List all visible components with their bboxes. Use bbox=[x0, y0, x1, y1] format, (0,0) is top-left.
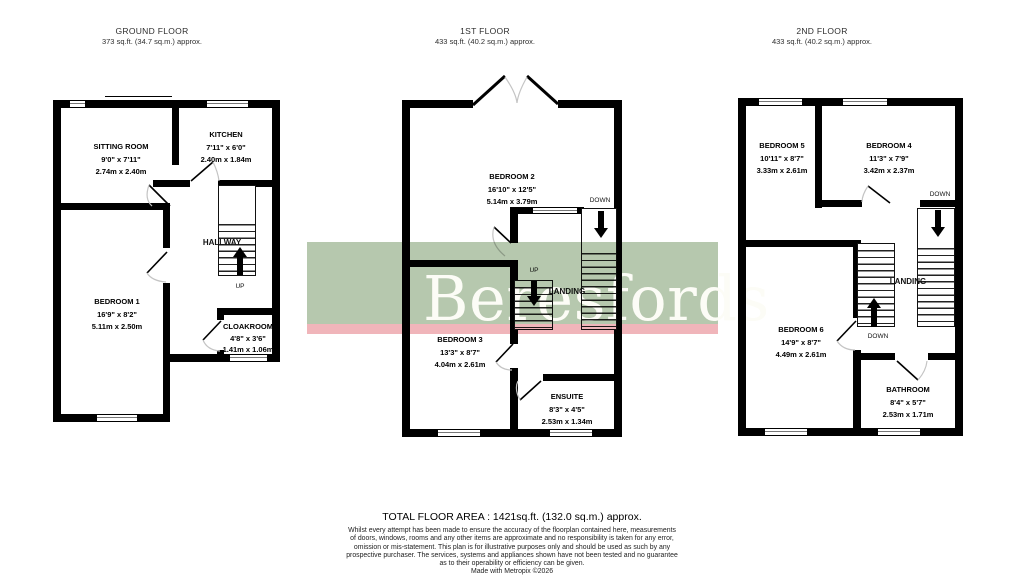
window bbox=[207, 100, 248, 108]
bay-window-walls bbox=[473, 76, 558, 105]
window bbox=[438, 429, 480, 437]
second-floor-header: 2ND FLOOR 433 sq.ft. (40.2 sq.m.) approx… bbox=[722, 26, 922, 46]
second-floor-title: 2ND FLOOR bbox=[722, 26, 922, 36]
wall-segment bbox=[163, 283, 170, 422]
arrow-shaft bbox=[598, 211, 604, 228]
disclaimer-line: of doors, windows, rooms and any other i… bbox=[0, 535, 1024, 543]
wall-segment bbox=[558, 100, 622, 108]
window bbox=[759, 98, 802, 106]
wall-segment bbox=[955, 98, 963, 436]
up-label-first: UP bbox=[529, 267, 538, 274]
room-dim-imperial: 16'9" x 8'2" bbox=[92, 309, 142, 322]
arrow-head bbox=[594, 228, 608, 238]
landing-label-second: LANDING bbox=[890, 277, 926, 286]
arrow-head bbox=[867, 298, 881, 308]
first-floor-title: 1ST FLOOR bbox=[385, 26, 585, 36]
second-floor-area: 433 sq.ft. (40.2 sq.m.) approx. bbox=[722, 37, 922, 46]
room-name: CLOAKROOM bbox=[223, 321, 274, 333]
window bbox=[765, 428, 807, 436]
down-label-second-center: DOWN bbox=[868, 333, 889, 340]
room-label-bedroom-1: BEDROOM 1 16'9" x 8'2" 5.11m x 2.50m bbox=[92, 296, 142, 334]
hallway-label: HALLWAY bbox=[203, 238, 241, 247]
room-label-cloakroom: CLOAKROOM 4'8" x 3'6" 1.41m x 1.06m bbox=[223, 321, 274, 356]
arrow-head bbox=[233, 247, 247, 257]
stairs-down-arrow-icon bbox=[594, 211, 608, 238]
room-name: ENSUITE bbox=[542, 391, 593, 404]
wall-segment bbox=[853, 353, 895, 360]
room-dim-imperial: 8'3" x 4'5" bbox=[542, 404, 593, 417]
room-label-bathroom: BATHROOM 8'4" x 5'7" 2.53m x 1.71m bbox=[883, 384, 934, 422]
room-label-bedroom-4: BEDROOM 4 11'3" x 7'9" 3.42m x 2.37m bbox=[864, 140, 915, 178]
window bbox=[878, 428, 920, 436]
ground-floor-title: GROUND FLOOR bbox=[52, 26, 252, 36]
wall-segment bbox=[163, 203, 170, 248]
room-name: BEDROOM 2 bbox=[487, 171, 538, 184]
wall-segment bbox=[920, 200, 963, 207]
room-label-kitchen: KITCHEN 7'11" x 6'0" 2.40m x 1.84m bbox=[201, 129, 252, 167]
room-dim-imperial: 10'11" x 8'7" bbox=[757, 153, 808, 166]
wall-segment bbox=[510, 368, 518, 437]
room-dim-metric: 1.41m x 1.06m bbox=[223, 344, 274, 356]
stairs-up-arrow-icon bbox=[233, 247, 247, 275]
arrow-shaft bbox=[935, 210, 941, 227]
window bbox=[97, 414, 137, 422]
room-dim-imperial: 7'11" x 6'0" bbox=[201, 142, 252, 155]
disclaimer-line: prospective purchaser. The services, sys… bbox=[0, 552, 1024, 560]
first-floor-header: 1ST FLOOR 433 sq.ft. (40.2 sq.m.) approx… bbox=[385, 26, 585, 46]
room-dim-metric: 4.49m x 2.61m bbox=[776, 349, 827, 362]
wall-segment bbox=[815, 200, 862, 207]
room-dim-metric: 3.33m x 2.61m bbox=[757, 165, 808, 178]
stairs-down-arrow-icon bbox=[931, 210, 945, 237]
room-dim-metric: 2.40m x 1.84m bbox=[201, 154, 252, 167]
room-name: SITTING ROOM bbox=[94, 141, 149, 154]
room-name: BEDROOM 5 bbox=[757, 140, 808, 153]
room-label-bedroom-6: BEDROOM 6 14'9" x 8'7" 4.49m x 2.61m bbox=[776, 324, 827, 362]
wall-segment bbox=[738, 98, 746, 436]
room-dim-imperial: 14'9" x 8'7" bbox=[776, 337, 827, 350]
room-dim-imperial: 16'10" x 12'5" bbox=[487, 184, 538, 197]
wall-segment bbox=[928, 353, 963, 360]
wall-segment bbox=[738, 240, 857, 247]
ground-floor-area: 373 sq.ft. (34.7 sq.m.) approx. bbox=[52, 37, 252, 46]
footer: TOTAL FLOOR AREA : 1421sq.ft. (132.0 sq.… bbox=[0, 511, 1024, 576]
wall-segment bbox=[172, 100, 179, 165]
landing-label-first: LANDING bbox=[549, 287, 585, 296]
total-floor-area: TOTAL FLOOR AREA : 1421sq.ft. (132.0 sq.… bbox=[0, 511, 1024, 523]
wall-segment bbox=[217, 308, 224, 320]
room-name: BEDROOM 6 bbox=[776, 324, 827, 337]
wall-segment bbox=[53, 203, 170, 210]
room-label-bedroom-5: BEDROOM 5 10'11" x 8'7" 3.33m x 2.61m bbox=[757, 140, 808, 178]
arrow-shaft bbox=[237, 257, 243, 275]
wall-segment bbox=[815, 98, 822, 208]
arrow-head bbox=[931, 227, 945, 237]
room-dim-imperial: 8'4" x 5'7" bbox=[883, 397, 934, 410]
room-dim-metric: 2.53m x 1.71m bbox=[883, 409, 934, 422]
disclaimer: Whilst every attempt has been made to en… bbox=[0, 527, 1024, 576]
up-label-ground: UP bbox=[235, 283, 244, 290]
window bbox=[533, 207, 577, 214]
wall-segment bbox=[402, 260, 512, 267]
room-label-bedroom-2: BEDROOM 2 16'10" x 12'5" 5.14m x 3.79m bbox=[487, 171, 538, 209]
room-dim-metric: 2.74m x 2.40m bbox=[94, 166, 149, 179]
room-label-sitting-room: SITTING ROOM 9'0" x 7'11" 2.74m x 2.40m bbox=[94, 141, 149, 179]
room-label-ensuite: ENSUITE 8'3" x 4'5" 2.53m x 1.34m bbox=[542, 391, 593, 429]
ground-floor-header: GROUND FLOOR 373 sq.ft. (34.7 sq.m.) app… bbox=[52, 26, 252, 46]
room-name: BEDROOM 1 bbox=[92, 296, 142, 309]
window bbox=[70, 100, 85, 108]
room-name: BATHROOM bbox=[883, 384, 934, 397]
room-dim-metric: 5.11m x 2.50m bbox=[92, 321, 142, 334]
wall-segment bbox=[543, 374, 622, 381]
disclaimer-line: Whilst every attempt has been made to en… bbox=[0, 527, 1024, 535]
wall-segment bbox=[53, 100, 61, 422]
room-dim-imperial: 13'3" x 8'7" bbox=[435, 347, 486, 360]
wall-segment bbox=[153, 180, 190, 187]
room-dim-metric: 3.42m x 2.37m bbox=[864, 165, 915, 178]
disclaimer-line: omission or mis-statement. This plan is … bbox=[0, 544, 1024, 552]
down-label-first: DOWN bbox=[590, 197, 611, 204]
floorplan-page: GROUND FLOOR 373 sq.ft. (34.7 sq.m.) app… bbox=[0, 0, 1024, 576]
metropix-credit: Made with Metropix ©2026 bbox=[0, 568, 1024, 576]
stairs-up-arrow-icon bbox=[527, 281, 541, 306]
room-label-bedroom-3: BEDROOM 3 13'3" x 8'7" 4.04m x 2.61m bbox=[435, 334, 486, 372]
room-dim-imperial: 4'8" x 3'6" bbox=[223, 333, 274, 345]
stairs-up-arrow-icon bbox=[867, 298, 881, 327]
arrow-shaft bbox=[871, 308, 877, 327]
arrow-shaft bbox=[531, 281, 537, 296]
wall-segment bbox=[853, 350, 861, 436]
room-dim-imperial: 9'0" x 7'11" bbox=[94, 154, 149, 167]
wall-segment bbox=[402, 100, 473, 108]
wall-segment bbox=[402, 100, 410, 437]
down-label-second-right: DOWN bbox=[930, 191, 951, 198]
room-name: BEDROOM 4 bbox=[864, 140, 915, 153]
wall-segment bbox=[217, 308, 272, 315]
stair-treads bbox=[582, 248, 616, 329]
room-dim-imperial: 11'3" x 7'9" bbox=[864, 153, 915, 166]
arrow-head bbox=[527, 296, 541, 306]
room-name: BEDROOM 3 bbox=[435, 334, 486, 347]
window bbox=[843, 98, 887, 106]
first-floor-area: 433 sq.ft. (40.2 sq.m.) approx. bbox=[385, 37, 585, 46]
window bbox=[550, 429, 592, 437]
room-dim-metric: 2.53m x 1.34m bbox=[542, 416, 593, 429]
room-dim-metric: 4.04m x 2.61m bbox=[435, 359, 486, 372]
room-dim-metric: 5.14m x 3.79m bbox=[487, 196, 538, 209]
room-name: KITCHEN bbox=[201, 129, 252, 142]
